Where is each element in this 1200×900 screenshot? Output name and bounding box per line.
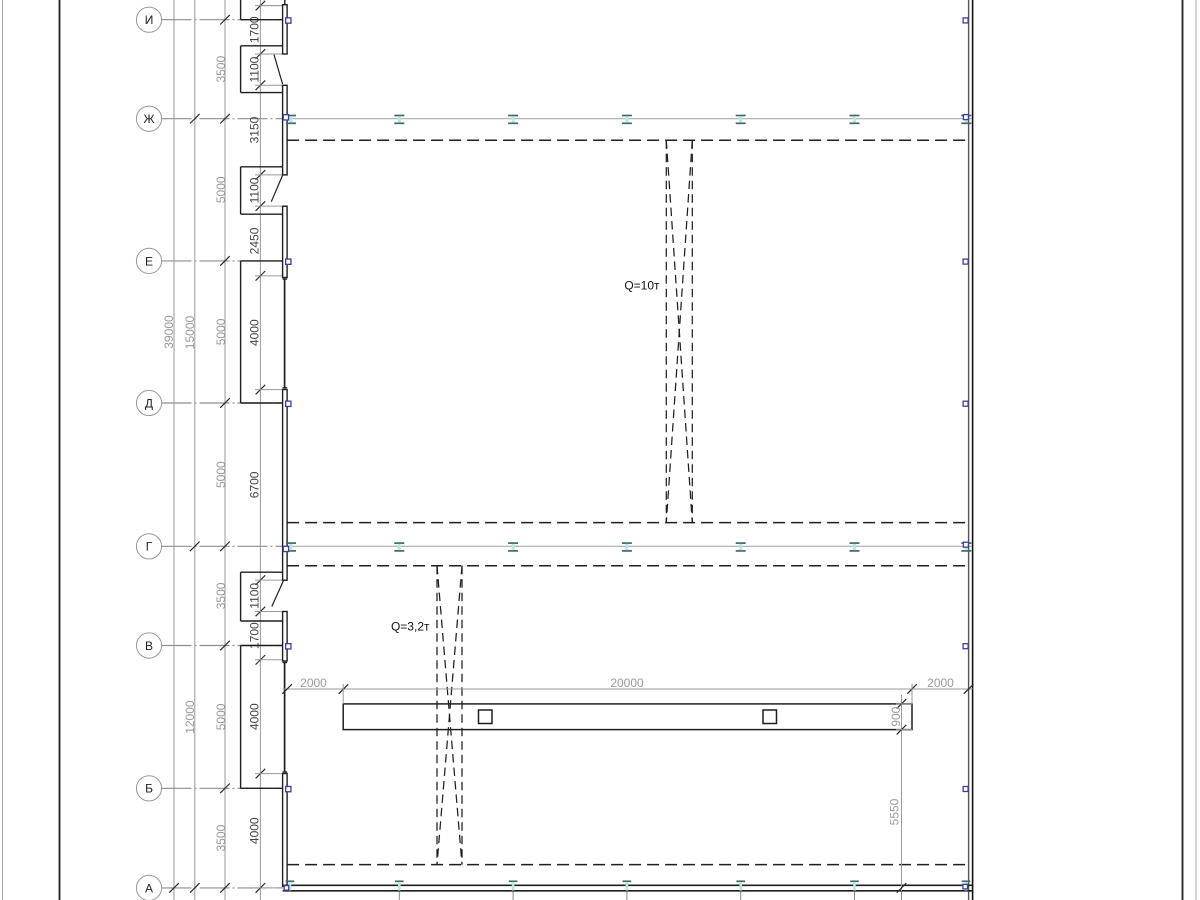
svg-text:3150: 3150 bbox=[248, 116, 262, 143]
svg-text:В: В bbox=[145, 639, 153, 653]
svg-text:А: А bbox=[145, 881, 153, 895]
svg-text:3500: 3500 bbox=[214, 824, 228, 851]
svg-text:2000: 2000 bbox=[927, 676, 954, 690]
svg-text:1100: 1100 bbox=[248, 583, 262, 609]
svg-text:2450: 2450 bbox=[248, 227, 262, 254]
svg-text:39000: 39000 bbox=[162, 315, 176, 349]
svg-text:5000: 5000 bbox=[214, 176, 228, 203]
svg-text:Г: Г bbox=[146, 540, 153, 554]
svg-text:Д: Д bbox=[145, 396, 153, 410]
svg-text:Q=3,2т: Q=3,2т bbox=[391, 620, 430, 634]
svg-text:5000: 5000 bbox=[214, 703, 228, 730]
svg-text:3500: 3500 bbox=[214, 56, 228, 83]
svg-text:1100: 1100 bbox=[248, 56, 262, 82]
svg-text:15000: 15000 bbox=[183, 315, 197, 349]
svg-text:Е: Е bbox=[145, 254, 153, 268]
svg-text:Б: Б bbox=[145, 782, 153, 796]
svg-text:2000: 2000 bbox=[300, 676, 327, 690]
svg-text:20000: 20000 bbox=[610, 676, 644, 690]
svg-text:3500: 3500 bbox=[214, 582, 228, 609]
svg-text:12000: 12000 bbox=[183, 700, 197, 734]
svg-text:5000: 5000 bbox=[214, 318, 228, 345]
svg-text:5550: 5550 bbox=[887, 798, 901, 825]
svg-text:6700: 6700 bbox=[248, 471, 262, 498]
svg-text:Q=10т: Q=10т bbox=[624, 279, 660, 293]
svg-text:4000: 4000 bbox=[248, 703, 262, 730]
svg-text:1100: 1100 bbox=[248, 177, 262, 203]
svg-text:4000: 4000 bbox=[248, 817, 262, 844]
svg-text:И: И bbox=[145, 13, 154, 27]
svg-text:5000: 5000 bbox=[214, 461, 228, 488]
svg-text:4000: 4000 bbox=[248, 319, 262, 346]
svg-text:Ж: Ж bbox=[143, 112, 154, 126]
svg-text:900: 900 bbox=[889, 706, 903, 726]
